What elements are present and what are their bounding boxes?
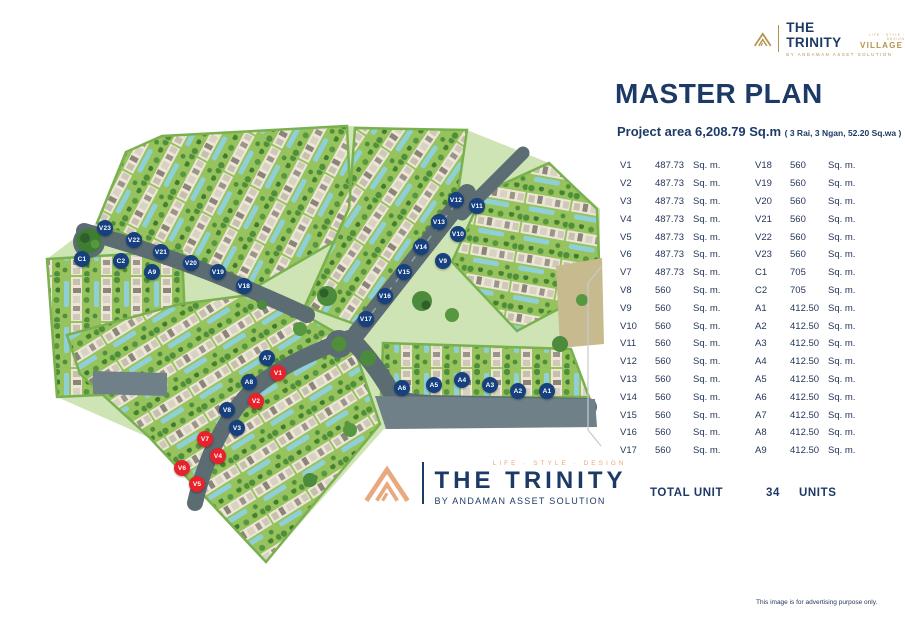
- unit-id: V8: [620, 285, 655, 296]
- unit-area: 705: [790, 267, 828, 278]
- logo-divider: [778, 25, 779, 52]
- unit-marker-v23: V23: [97, 220, 113, 236]
- brand-name: THE TRINITY: [786, 20, 857, 50]
- brand-tagline: LIFE · STYLE · DESIGN: [860, 33, 905, 41]
- unit-id: A5: [755, 374, 790, 385]
- unit-id: V21: [755, 214, 790, 225]
- unit-area: 412.50: [790, 356, 828, 367]
- unit-area-suffix: Sq. m.: [693, 249, 732, 260]
- unit-area: 560: [655, 321, 693, 332]
- info-panel: MASTER PLAN Project area 6,208.79 Sq.m (…: [615, 78, 900, 110]
- unit-marker-v2: V2: [248, 393, 264, 409]
- unit-id: V19: [755, 178, 790, 189]
- unit-area: 560: [790, 160, 828, 171]
- unit-id: V23: [755, 249, 790, 260]
- total-row: TOTAL UNIT 34 UNITS: [615, 487, 900, 503]
- unit-marker-v11: V11: [469, 198, 485, 214]
- project-area: Project area 6,208.79 Sq.m ( 3 Rai, 3 Ng…: [617, 124, 905, 139]
- unit-marker-a5: A5: [426, 377, 442, 393]
- unit-area: 560: [655, 338, 693, 349]
- bottom-brand-logo: LIFE · STYLE · DESIGN THE TRINITY BY AND…: [362, 460, 627, 506]
- page-title: MASTER PLAN: [615, 78, 900, 110]
- unit-area-suffix: Sq. m.: [693, 392, 732, 403]
- unit-area: 487.73: [655, 196, 693, 207]
- unit-id: V9: [620, 303, 655, 314]
- project-area-text: Project area 6,208.79 Sq.m: [617, 124, 785, 139]
- unit-area-suffix: Sq. m.: [693, 178, 732, 189]
- unit-area-suffix: Sq. m.: [828, 267, 867, 278]
- total-units-label: UNITS: [799, 487, 837, 499]
- unit-marker-a8: A8: [241, 374, 257, 390]
- unit-id: A6: [755, 392, 790, 403]
- unit-area-suffix: Sq. m.: [828, 445, 867, 456]
- unit-area: 560: [655, 445, 693, 456]
- unit-marker-v22: V22: [126, 232, 142, 248]
- unit-area: 705: [790, 285, 828, 296]
- unit-area: 412.50: [790, 427, 828, 438]
- unit-area-suffix: Sq. m.: [828, 321, 867, 332]
- unit-id: V22: [755, 232, 790, 243]
- unit-area: 487.73: [655, 178, 693, 189]
- unit-area: 560: [790, 214, 828, 225]
- unit-area-suffix: Sq. m.: [693, 374, 732, 385]
- unit-marker-v12: V12: [448, 192, 464, 208]
- unit-marker-v8: V8: [219, 402, 235, 418]
- unit-id: V11: [620, 338, 655, 349]
- unit-id: V7: [620, 267, 655, 278]
- unit-area: 560: [655, 374, 693, 385]
- unit-area-suffix: Sq. m.: [693, 410, 732, 421]
- unit-marker-v9: V9: [435, 253, 451, 269]
- unit-area-suffix: Sq. m.: [828, 427, 867, 438]
- unit-marker-a3: A3: [482, 377, 498, 393]
- unit-area: 487.73: [655, 232, 693, 243]
- unit-area-suffix: Sq. m.: [693, 267, 732, 278]
- unit-marker-v19: V19: [210, 264, 226, 280]
- logo-divider: [422, 462, 424, 504]
- unit-id: V12: [620, 356, 655, 367]
- unit-marker-v18: V18: [236, 278, 252, 294]
- unit-area-suffix: Sq. m.: [828, 249, 867, 260]
- unit-area-suffix: Sq. m.: [693, 303, 732, 314]
- unit-area-suffix: Sq. m.: [828, 374, 867, 385]
- unit-area: 412.50: [790, 392, 828, 403]
- unit-area-suffix: Sq. m.: [693, 338, 732, 349]
- unit-area: 560: [790, 178, 828, 189]
- unit-area: 560: [655, 285, 693, 296]
- unit-id: A1: [755, 303, 790, 314]
- brand-byline: BY ANDAMAN ASSET SOLUTION: [786, 52, 905, 57]
- unit-marker-v7: V7: [197, 431, 213, 447]
- unit-area: 560: [790, 249, 828, 260]
- unit-marker-a6: A6: [394, 380, 410, 396]
- unit-marker-a4: A4: [454, 372, 470, 388]
- unit-id: A4: [755, 356, 790, 367]
- unit-marker-v1: V1: [270, 365, 286, 381]
- unit-area-suffix: Sq. m.: [693, 196, 732, 207]
- unit-marker-v14: V14: [413, 239, 429, 255]
- unit-area-suffix: Sq. m.: [828, 178, 867, 189]
- unit-marker-a1: A1: [539, 383, 555, 399]
- unit-area: 412.50: [790, 338, 828, 349]
- master-plan-map: V23V22V21C1C2A9V20V19V18V12V11V13V10V14V…: [0, 0, 610, 640]
- unit-area: 487.73: [655, 214, 693, 225]
- unit-id: A9: [755, 445, 790, 456]
- unit-area-suffix: Sq. m.: [693, 445, 732, 456]
- unit-marker-v20: V20: [183, 255, 199, 271]
- unit-marker-a9: A9: [144, 264, 160, 280]
- total-value: 34: [766, 487, 780, 499]
- unit-id: C2: [755, 285, 790, 296]
- unit-area: 560: [790, 196, 828, 207]
- unit-area: 487.73: [655, 249, 693, 260]
- unit-id: A7: [755, 410, 790, 421]
- unit-area: 412.50: [790, 321, 828, 332]
- unit-id: A8: [755, 427, 790, 438]
- unit-id: V17: [620, 445, 655, 456]
- unit-area-suffix: Sq. m.: [828, 232, 867, 243]
- unit-marker-v17: V17: [358, 311, 374, 327]
- marker-layer: V23V22V21C1C2A9V20V19V18V12V11V13V10V14V…: [0, 0, 610, 640]
- unit-area-suffix: Sq. m.: [693, 232, 732, 243]
- unit-id: V15: [620, 410, 655, 421]
- unit-area-suffix: Sq. m.: [693, 427, 732, 438]
- unit-id: V18: [755, 160, 790, 171]
- trinity-logo-icon: [362, 460, 412, 506]
- unit-area: 560: [655, 410, 693, 421]
- unit-area-suffix: Sq. m.: [828, 356, 867, 367]
- unit-area-suffix: Sq. m.: [693, 160, 732, 171]
- unit-area-suffix: Sq. m.: [693, 321, 732, 332]
- unit-area-suffix: Sq. m.: [828, 338, 867, 349]
- unit-area-suffix: Sq. m.: [828, 303, 867, 314]
- unit-marker-v10: V10: [450, 226, 466, 242]
- unit-area: 412.50: [790, 445, 828, 456]
- unit-area-suffix: Sq. m.: [828, 214, 867, 225]
- unit-area: 412.50: [790, 374, 828, 385]
- unit-marker-a2: A2: [510, 383, 526, 399]
- project-area-detail: ( 3 Rai, 3 Ngan, 52.20 Sq.wa ): [785, 128, 902, 138]
- unit-id: V14: [620, 392, 655, 403]
- unit-id: V3: [620, 196, 655, 207]
- unit-marker-a7: A7: [259, 350, 275, 366]
- unit-area-suffix: Sq. m.: [693, 285, 732, 296]
- unit-id: V13: [620, 374, 655, 385]
- brand-suffix: VILLAGE: [860, 41, 905, 50]
- unit-area: 487.73: [655, 160, 693, 171]
- unit-area-suffix: Sq. m.: [828, 392, 867, 403]
- unit-area: 560: [655, 392, 693, 403]
- unit-area: 412.50: [790, 303, 828, 314]
- unit-marker-v13: V13: [431, 214, 447, 230]
- unit-area: 487.73: [655, 267, 693, 278]
- unit-id: V20: [755, 196, 790, 207]
- unit-area-suffix: Sq. m.: [693, 356, 732, 367]
- unit-marker-v6: V6: [174, 460, 190, 476]
- unit-area-suffix: Sq. m.: [828, 285, 867, 296]
- unit-table-column-left: V1487.73Sq. m.V2487.73Sq. m.V3487.73Sq. …: [620, 157, 732, 460]
- unit-marker-c1: C1: [74, 251, 90, 267]
- unit-id: V4: [620, 214, 655, 225]
- unit-marker-v5: V5: [189, 476, 205, 492]
- unit-area: 560: [655, 427, 693, 438]
- unit-id: V5: [620, 232, 655, 243]
- unit-area-suffix: Sq. m.: [828, 196, 867, 207]
- disclaimer-text: This image is for advertising purpose on…: [756, 599, 877, 606]
- unit-marker-v3: V3: [229, 420, 245, 436]
- unit-id: V6: [620, 249, 655, 260]
- unit-id: V10: [620, 321, 655, 332]
- unit-id: C1: [755, 267, 790, 278]
- unit-table-column-right: V18560Sq. m.V19560Sq. m.V20560Sq. m.V215…: [755, 157, 867, 460]
- unit-marker-v4: V4: [210, 448, 226, 464]
- total-label: TOTAL UNIT: [650, 487, 723, 499]
- unit-area: 560: [655, 356, 693, 367]
- unit-id: V1: [620, 160, 655, 171]
- unit-id: A3: [755, 338, 790, 349]
- unit-id: V2: [620, 178, 655, 189]
- unit-marker-v21: V21: [153, 244, 169, 260]
- unit-id: A2: [755, 321, 790, 332]
- unit-area: 412.50: [790, 410, 828, 421]
- unit-area: 560: [655, 303, 693, 314]
- unit-marker-v16: V16: [377, 288, 393, 304]
- unit-marker-v15: V15: [396, 264, 412, 280]
- unit-area: 560: [790, 232, 828, 243]
- brand-tagline: LIFE · STYLE · DESIGN: [435, 460, 627, 467]
- unit-marker-c2: C2: [113, 253, 129, 269]
- unit-id: V16: [620, 427, 655, 438]
- unit-area-suffix: Sq. m.: [693, 214, 732, 225]
- trinity-village-logo-icon: [753, 27, 772, 51]
- unit-area-suffix: Sq. m.: [828, 160, 867, 171]
- brand-name: THE TRINITY: [435, 468, 627, 493]
- unit-area-suffix: Sq. m.: [828, 410, 867, 421]
- brand-byline: BY ANDAMAN ASSET SOLUTION: [435, 496, 627, 506]
- top-brand-logo: THE TRINITY LIFE · STYLE · DESIGN VILLAG…: [753, 20, 905, 57]
